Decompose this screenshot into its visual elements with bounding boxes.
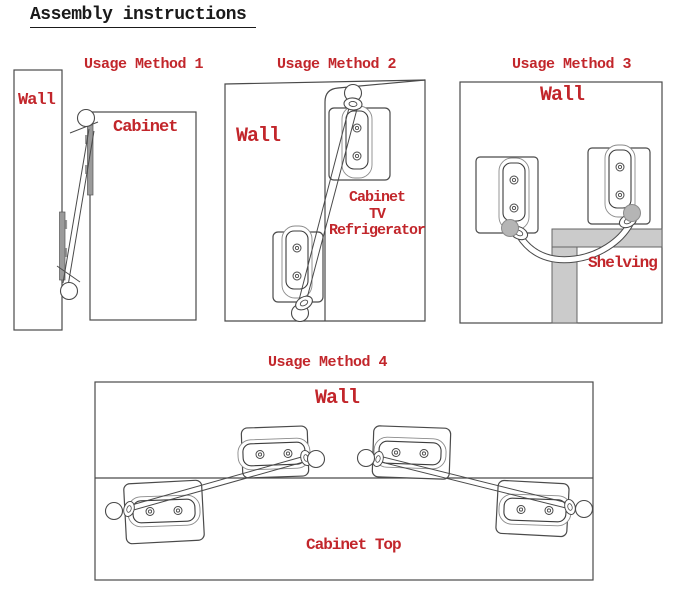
method4-wall-label: Wall (315, 387, 359, 410)
anchor-bracket-icon (498, 494, 571, 526)
method2-target-line1: Cabinet (322, 190, 432, 207)
ball-knob-icon (78, 110, 95, 127)
ball-knob-icon (308, 451, 325, 468)
anchor-bracket-icon (282, 226, 312, 298)
ball-knob-icon (358, 450, 375, 467)
ball-knob-icon (502, 220, 519, 237)
method3-diagram (460, 82, 662, 323)
ball-knob-icon (61, 283, 78, 300)
method1-cabinet-label: Cabinet (113, 118, 177, 137)
method4-cabinet-top-label: Cabinet Top (306, 536, 401, 554)
anchor-bracket-icon (373, 437, 446, 469)
anchor-bracket-icon (127, 495, 200, 527)
method2-wall-label: Wall (236, 125, 280, 148)
method3-shelving-label: Shelving (588, 254, 657, 272)
ball-knob-icon (106, 503, 123, 520)
cabinet-shape (90, 112, 196, 320)
method2-heading: Usage Method 2 (277, 56, 396, 73)
assembly-instructions-page: Assembly instructions Usage Method 1 Usa… (0, 0, 679, 593)
anchor-bracket-icon (237, 438, 310, 470)
ball-knob-icon (624, 205, 641, 222)
ball-knob-icon (576, 501, 593, 518)
method4-heading: Usage Method 4 (268, 354, 387, 371)
method3-heading: Usage Method 3 (512, 56, 631, 73)
anchor-bracket-icon (499, 158, 529, 230)
method2-target-line3: Refrigerator (322, 223, 432, 240)
page-title: Assembly instructions (30, 5, 256, 28)
method2-target-line2: TV (322, 207, 432, 224)
method2-target-label: Cabinet TV Refrigerator (322, 190, 432, 240)
method1-wall-label: Wall (18, 91, 55, 110)
method3-wall-label: Wall (540, 84, 584, 107)
method1-heading: Usage Method 1 (84, 56, 203, 73)
